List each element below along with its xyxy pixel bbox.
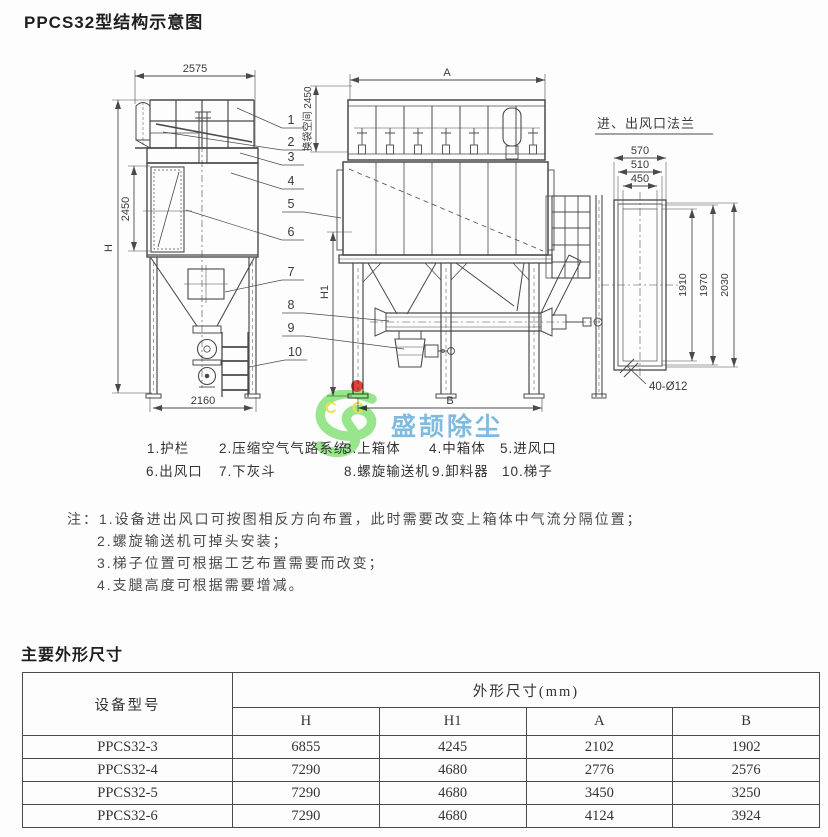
part-number-5: 5 [288, 197, 295, 211]
dim-front-width: A [443, 67, 451, 79]
part-number-1: 1 [288, 113, 295, 127]
cell-h: 7290 [233, 759, 380, 782]
cell-h: 7290 [233, 805, 380, 828]
dim-flange-holes: 40-Ø12 [649, 381, 687, 393]
dim-flange-450: 450 [631, 173, 649, 185]
cell-h1: 4245 [379, 736, 526, 759]
dim-flange-2030: 2030 [719, 273, 731, 297]
col-header-model: 设备型号 [23, 673, 233, 736]
part-number-4: 4 [288, 174, 295, 188]
side-view-geometry [112, 70, 404, 412]
note-line-2: 2.螺旋输送机可掉头安装； [67, 530, 643, 552]
note-line-4: 4.支腿高度可根据需要增减。 [67, 574, 643, 596]
cell-h1: 4680 [379, 805, 526, 828]
legend-item-6: 6.出风口 [146, 460, 203, 480]
note-line-3: 3.梯子位置可根据工艺布置需要而改变； [67, 552, 643, 574]
notes-prefix: 注： [67, 511, 99, 527]
cell-a: 3450 [526, 782, 673, 805]
watermark-dot-icon [351, 380, 363, 392]
table-row: PPCS32-6 7290 4680 4124 3924 [23, 805, 820, 828]
legend-item-7: 7.下灰斗 [219, 460, 276, 480]
cell-h1: 4680 [379, 782, 526, 805]
table-section-title: 主要外形尺寸 [21, 641, 123, 665]
flange-view-title: 进、出风口法兰 [597, 116, 695, 131]
cell-h: 6855 [233, 736, 380, 759]
table-row: PPCS32-3 6855 4245 2102 1902 [23, 736, 820, 759]
cell-model: PPCS32-5 [23, 782, 233, 805]
dim-flange-510: 510 [631, 159, 649, 171]
watermark-letter-c2: C [352, 400, 364, 418]
dim-leg-height: H1 [319, 285, 331, 299]
cell-model: PPCS32-3 [23, 736, 233, 759]
dim-mid-box-height: 2450 [120, 197, 132, 221]
dim-flange-1910: 1910 [677, 273, 689, 297]
part-number-2: 2 [288, 135, 295, 149]
legend-item-5: 5.进风口 [500, 437, 557, 457]
dim-flange-1970: 1970 [698, 273, 710, 297]
col-header-a: A [526, 708, 673, 736]
dimensions-table: 设备型号 外形尺寸(mm) H H1 A B PPCS32-3 6855 424… [22, 672, 820, 828]
col-header-b: B [673, 708, 820, 736]
watermark-letter-c1: C [325, 400, 337, 418]
col-header-group: 外形尺寸(mm) [233, 673, 820, 708]
dim-bag-space: 换袋空间 2450 [301, 86, 314, 151]
note-line-1: 注：1.设备进出风口可按图相反方向布置，此时需要改变上箱体中气流分隔位置； [67, 508, 643, 530]
cell-model: PPCS32-6 [23, 805, 233, 828]
document-page: PPCS32型结构示意图 [0, 0, 828, 837]
cell-model: PPCS32-4 [23, 759, 233, 782]
flange-view-geometry [595, 134, 738, 384]
legend-item-10: 10.梯子 [502, 460, 553, 480]
cell-a: 4124 [526, 805, 673, 828]
part-number-7: 7 [288, 265, 295, 279]
part-number-8: 8 [288, 298, 295, 312]
table-row: PPCS32-4 7290 4680 2776 2576 [23, 759, 820, 782]
part-number-10: 10 [288, 345, 302, 359]
col-header-h: H [233, 708, 380, 736]
legend-item-4: 4.中箱体 [429, 437, 486, 457]
notes-block: 注：1.设备进出风口可按图相反方向布置，此时需要改变上箱体中气流分隔位置； 2.… [67, 508, 643, 596]
part-number-6: 6 [288, 225, 295, 239]
col-header-h1: H1 [379, 708, 526, 736]
part-number-9: 9 [288, 321, 295, 335]
part-number-3: 3 [288, 150, 295, 164]
cell-b: 3250 [673, 782, 820, 805]
structure-diagram: 2575 H 2450 2160 1 2 3 4 5 6 7 8 9 10 [0, 0, 828, 440]
cell-a: 2102 [526, 736, 673, 759]
front-view-geometry [310, 74, 606, 412]
cell-h: 7290 [233, 782, 380, 805]
note-text-1: 1.设备进出风口可按图相反方向布置，此时需要改变上箱体中气流分隔位置； [99, 511, 643, 527]
table-row: PPCS32-5 7290 4680 3450 3250 [23, 782, 820, 805]
legend-item-8: 8.螺旋输送机 [344, 460, 430, 480]
cell-h1: 4680 [379, 759, 526, 782]
cell-b: 3924 [673, 805, 820, 828]
dim-flange-570: 570 [631, 145, 649, 157]
legend-item-9: 9.卸料器 [432, 460, 489, 480]
dim-total-height: H [103, 244, 115, 252]
legend-item-3: 3.上箱体 [344, 437, 401, 457]
legend-item-2: 2.压缩空气气路系统 [219, 437, 348, 457]
dim-base-width: 2160 [191, 395, 215, 407]
cell-a: 2776 [526, 759, 673, 782]
cell-b: 2576 [673, 759, 820, 782]
dim-top-width: 2575 [183, 63, 207, 75]
legend-item-1: 1.护栏 [147, 437, 189, 457]
dim-base-front-width: B [446, 395, 453, 407]
cell-b: 1902 [673, 736, 820, 759]
